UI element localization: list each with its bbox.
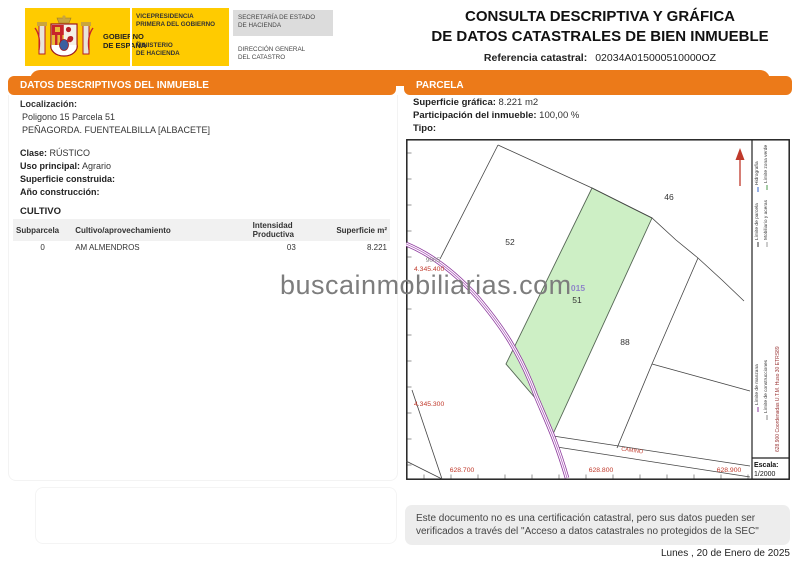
document-title-line2: DE DATOS CATASTRALES DE BIEN INMUEBLE: [410, 28, 790, 45]
tipo-row: Tipo:: [413, 123, 436, 134]
localizacion-line1: Poligono 15 Parcela 51: [22, 112, 115, 122]
watermark: buscainmobiliarias.com: [280, 270, 540, 301]
coord-x3-label: 628.900: [717, 467, 742, 474]
clase-label: Clase:: [20, 148, 47, 158]
legend-mobiliario: Mobiliario y aceras: [763, 199, 769, 240]
participacion-value: 100,00 %: [539, 110, 579, 121]
disclaimer-box: Este documento no es una certificación c…: [405, 505, 790, 545]
cultivo-table-row: 0 AM ALMENDROS 03 8.221: [13, 241, 390, 254]
vicepresidencia-label: VICEPRESIDENCIA PRIMERA DEL GOBIERNO: [136, 13, 228, 29]
legend-limite-manzana: Límite de manzana: [754, 364, 760, 405]
coord-x2-label: 628.800: [589, 467, 614, 474]
parcel-52-label: 52: [505, 237, 515, 247]
cultivo-title: CULTIVO: [20, 206, 61, 217]
document-title-line1: CONSULTA DESCRIPTIVA Y GRÁFICA: [410, 8, 790, 25]
col-subparcela: Subparcela: [13, 219, 72, 241]
col-intensidad: Intensidad Productiva: [250, 219, 334, 241]
ano-construccion-label: Año construcción:: [20, 187, 100, 197]
superficie-grafica-value: 8.221 m2: [499, 97, 539, 108]
uso-principal-value: Agrario: [82, 161, 111, 171]
participacion-label: Participación del inmueble:: [413, 110, 537, 121]
cadastral-reference: Referencia catastral:02034A015000510000O…: [410, 52, 790, 64]
uso-principal-row: Uso principal: Agrario: [20, 161, 111, 171]
col-superficie: Superficie m²: [333, 219, 390, 241]
col-cultivo: Cultivo/aprovechamiento: [72, 219, 249, 241]
superficie-grafica-label: Superficie gráfica:: [413, 97, 496, 108]
legend-limite-construcciones: Límite de construcciones: [763, 359, 769, 413]
ministerio-label: MINISTERIO DE HACIENDA: [136, 42, 228, 58]
parcel-88-label: 88: [620, 337, 630, 347]
cadastral-reference-label: Referencia catastral:: [484, 52, 587, 64]
section-header-parcela: PARCELA: [404, 76, 792, 95]
localizacion-label-text: Localización:: [20, 99, 77, 109]
tipo-label: Tipo:: [413, 123, 436, 134]
cadastral-map: 52 46 88 9005 015 51 CAMINO 4.345.400 4.…: [406, 139, 790, 480]
logo-divider: [130, 8, 132, 66]
legend-hidrografia: Hidrografía: [754, 161, 760, 185]
localizacion-label: Localización:: [20, 99, 77, 109]
cadastral-document-page: GOBIERNO DE ESPAÑA VICEPRESIDENCIA PRIME…: [0, 0, 800, 565]
superficie-construida-row: Superficie construida:: [20, 174, 115, 184]
cell-subparcela: 0: [13, 241, 72, 254]
spain-coat-of-arms-icon: [33, 14, 95, 60]
clase-row: Clase: RÚSTICO: [20, 148, 90, 158]
escala-value: 1/2000: [754, 471, 776, 478]
direccion-general-label: DIRECCIÓN GENERAL DEL CATASTRO: [238, 46, 330, 62]
localizacion-line2: PEÑAGORDA. FUENTEALBILLA [ALBACETE]: [22, 125, 210, 135]
cell-superficie: 8.221: [333, 241, 390, 254]
section-header-datos-descriptivos: DATOS DESCRIPTIVOS DEL INMUEBLE: [8, 76, 396, 95]
superficie-construida-label: Superficie construida:: [20, 174, 115, 184]
utm-note-label: 628.900 Coordenadas U.T.M. Huso 30 ETRS8…: [775, 346, 781, 452]
clase-value: RÚSTICO: [50, 148, 91, 158]
escala-label: Escala:: [754, 462, 779, 469]
coord-x1-label: 628.700: [450, 467, 475, 474]
superficie-grafica-row: Superficie gráfica: 8.221 m2: [413, 97, 538, 108]
parcel-46-label: 46: [664, 192, 674, 202]
document-date: Lunes , 20 de Enero de 2025: [480, 548, 790, 559]
cadastral-reference-value: 02034A015000510000OZ: [595, 52, 716, 64]
highlight-subparcel-label: 015: [571, 283, 585, 293]
cultivo-table: Subparcela Cultivo/aprovechamiento Inten…: [13, 219, 390, 254]
participacion-row: Participación del inmueble: 100,00 %: [413, 110, 579, 121]
secretaria-label: SECRETARÍA DE ESTADO DE HACIENDA: [238, 14, 330, 30]
cell-intensidad: 03: [250, 241, 334, 254]
cultivo-table-header-row: Subparcela Cultivo/aprovechamiento Inten…: [13, 219, 390, 241]
empty-bottom-left-box: [35, 487, 397, 544]
legend-limite-parcela: Límite de parcela: [754, 203, 760, 240]
cell-cultivo: AM ALMENDROS: [72, 241, 249, 254]
uso-principal-label: Uso principal:: [20, 161, 80, 171]
legend-zona-verde: Límite zona verde: [763, 145, 769, 183]
coord-y2-label: 4.345.300: [414, 401, 444, 408]
ano-construccion-row: Año construcción:: [20, 187, 100, 197]
parcel-9005-label: 9005: [426, 257, 441, 264]
highlight-parcel-label: 51: [572, 295, 582, 305]
